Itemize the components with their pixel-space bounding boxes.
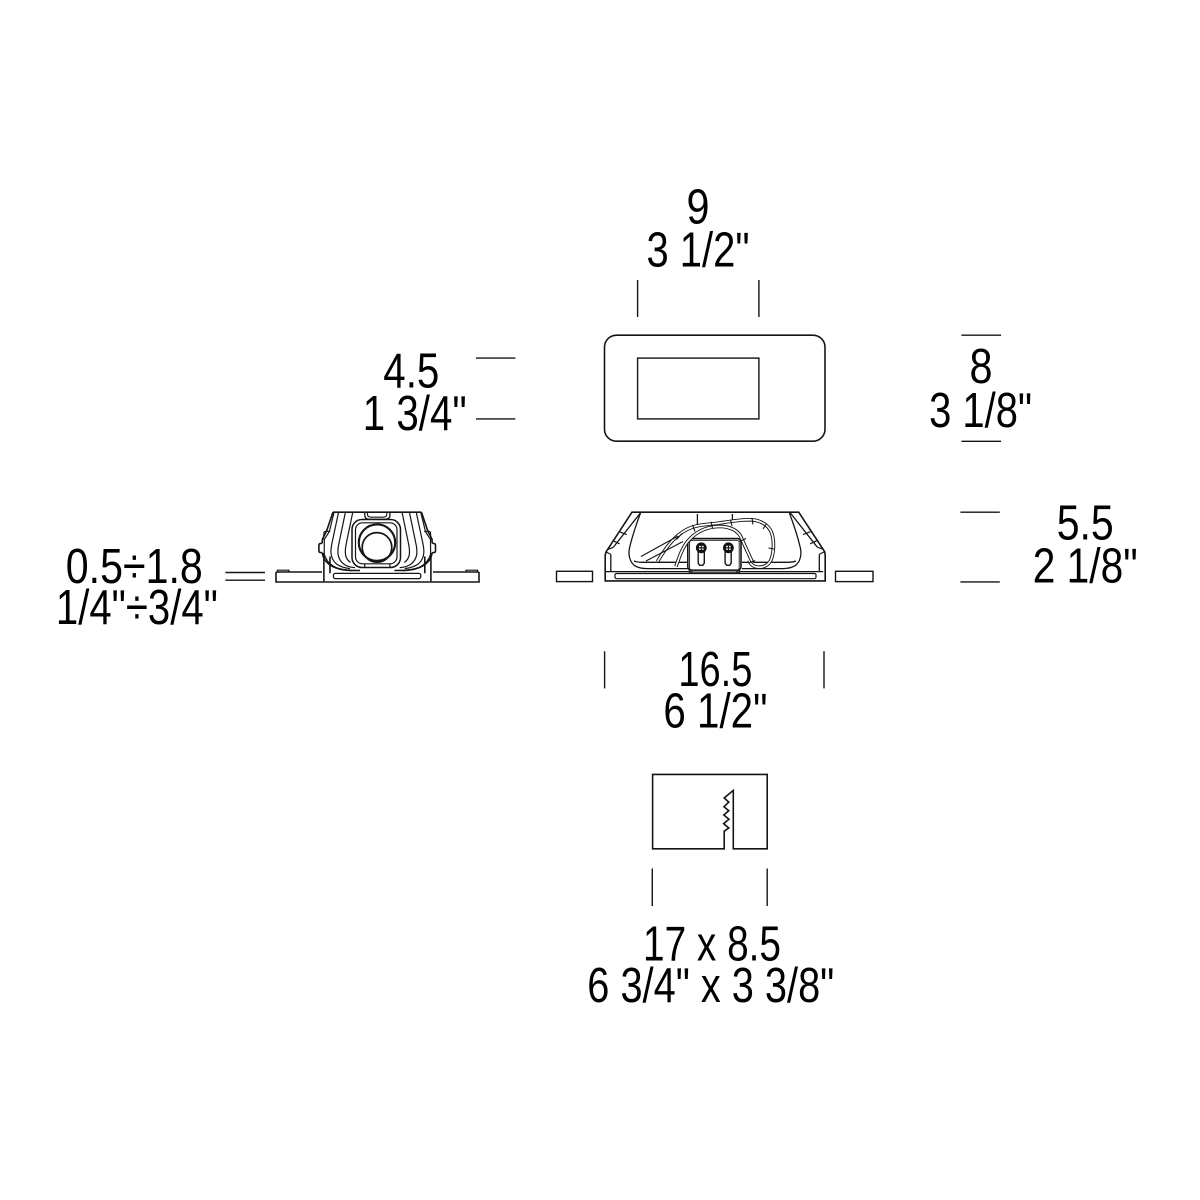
svg-text:6 1/2": 6 1/2" [663, 685, 767, 739]
svg-text:1/4"÷3/4": 1/4"÷3/4" [56, 581, 218, 635]
svg-text:3 1/2": 3 1/2" [647, 224, 750, 278]
svg-text:2 1/8": 2 1/8" [1033, 539, 1138, 593]
svg-text:3 1/8": 3 1/8" [929, 384, 1032, 438]
svg-text:1 3/4": 1 3/4" [363, 387, 467, 441]
svg-text:6 3/4" x 3 3/8": 6 3/4" x 3 3/8" [587, 959, 834, 1013]
